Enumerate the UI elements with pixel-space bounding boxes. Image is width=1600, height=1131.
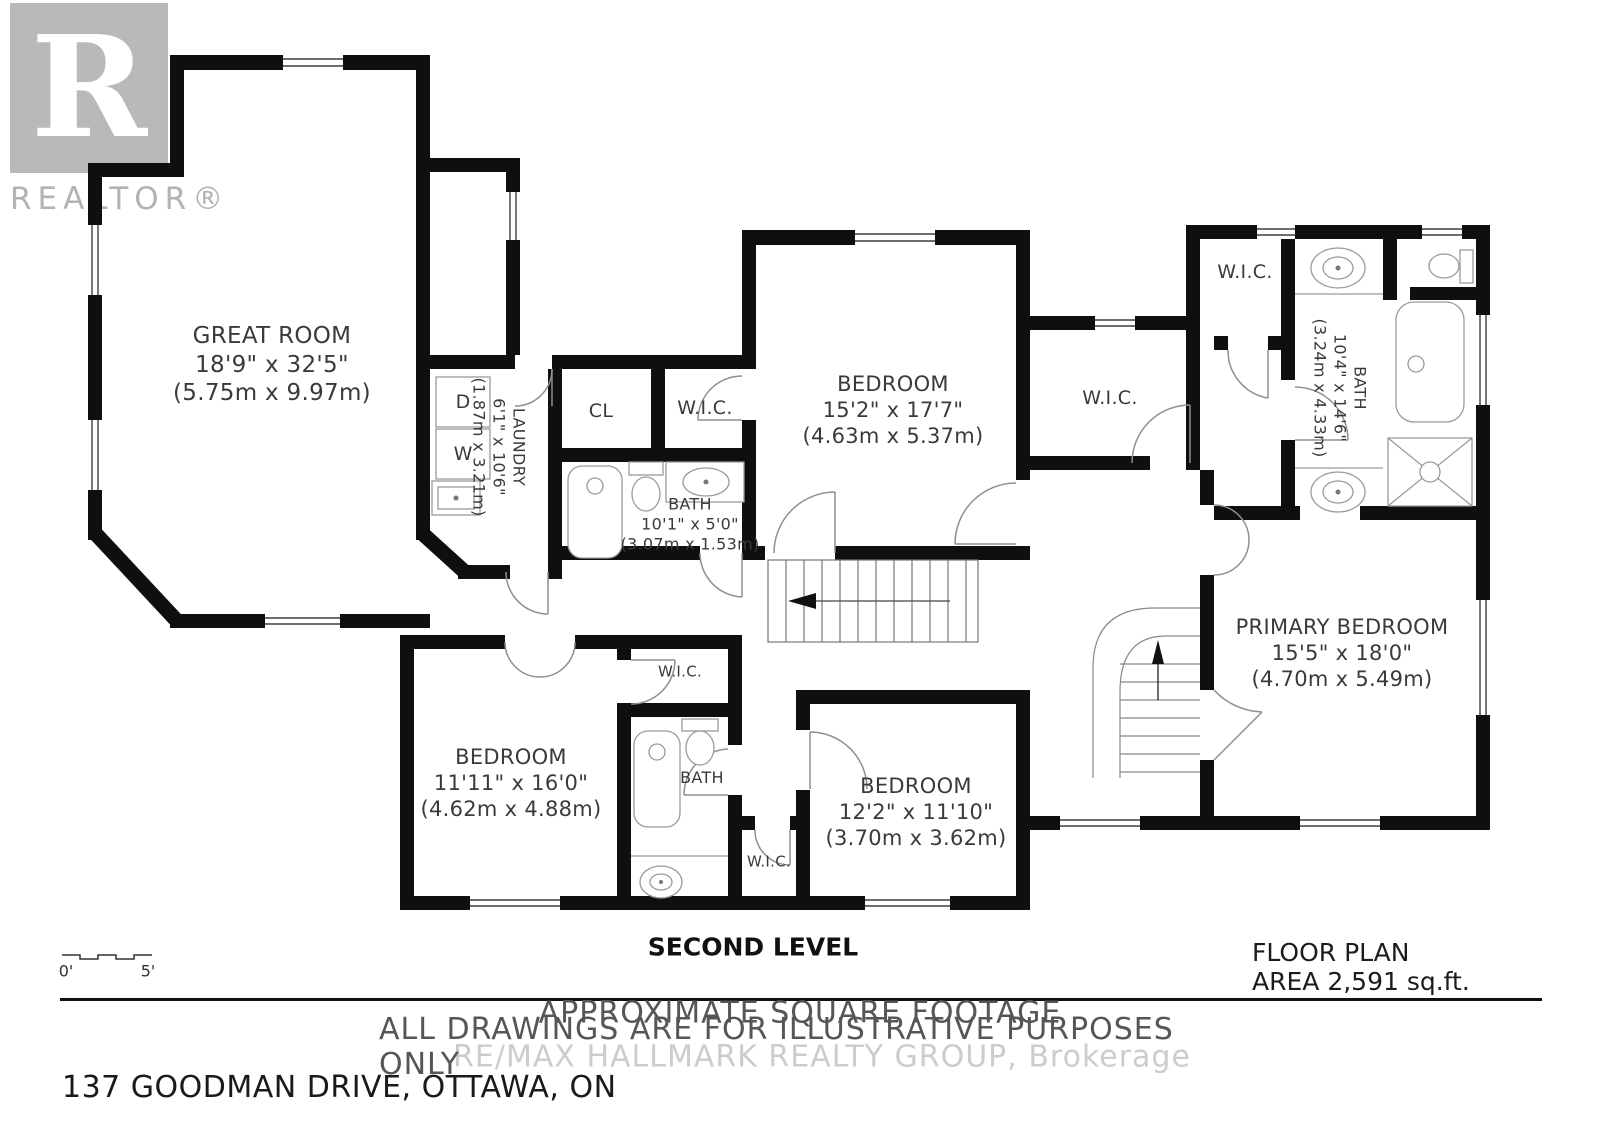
door-arc bbox=[755, 830, 790, 865]
sink-icon bbox=[666, 462, 744, 502]
door-arc bbox=[698, 376, 742, 420]
door-arc bbox=[810, 732, 867, 789]
walls bbox=[88, 55, 1490, 910]
window bbox=[1476, 600, 1490, 715]
shower-icon bbox=[1388, 438, 1472, 506]
bathtub-icon bbox=[568, 466, 622, 558]
sink-icon bbox=[1295, 248, 1383, 294]
window bbox=[855, 230, 935, 245]
stair-direction-arrow bbox=[1152, 640, 1164, 664]
door-arc bbox=[505, 642, 540, 677]
window bbox=[1476, 315, 1490, 405]
toilet-icon bbox=[1429, 250, 1473, 283]
toilet-icon bbox=[629, 462, 663, 511]
window bbox=[506, 192, 520, 240]
window bbox=[865, 896, 950, 910]
fixtures bbox=[432, 248, 1473, 898]
window bbox=[1300, 816, 1380, 830]
staircase-curved bbox=[1093, 608, 1200, 778]
door-leaf bbox=[1214, 712, 1262, 760]
window bbox=[88, 420, 102, 490]
window bbox=[1060, 816, 1140, 830]
door-arc bbox=[955, 483, 1016, 544]
floor-plan-page: R REALTOR® RE/MAX HALLMARK REALTY GROUP,… bbox=[0, 0, 1600, 1131]
laundry-sink-icon bbox=[432, 481, 480, 515]
window bbox=[1257, 225, 1295, 239]
toilet-icon bbox=[682, 719, 718, 765]
window bbox=[1422, 225, 1462, 239]
door-arc bbox=[1295, 387, 1348, 440]
door-arc bbox=[1228, 350, 1268, 398]
door-arcs bbox=[505, 350, 1348, 865]
window bbox=[88, 225, 102, 295]
window bbox=[1095, 316, 1135, 330]
washer-icon bbox=[436, 429, 490, 479]
bathtub-icon bbox=[634, 731, 680, 827]
floor-plan-svg bbox=[0, 0, 1600, 1131]
bathtub-icon bbox=[1396, 302, 1464, 422]
door-arc bbox=[700, 553, 742, 597]
window bbox=[470, 896, 560, 910]
sink-icon bbox=[1295, 468, 1383, 512]
window bbox=[283, 55, 343, 70]
door-arc bbox=[1214, 690, 1262, 712]
stair-direction-arrow bbox=[788, 593, 816, 609]
door-arc bbox=[1214, 540, 1249, 575]
door-arc bbox=[506, 572, 548, 614]
dryer-icon bbox=[436, 377, 490, 427]
property-address: 137 GOODMAN DRIVE, OTTAWA, ON bbox=[62, 1070, 617, 1105]
scale-bar bbox=[62, 955, 152, 959]
door-arc bbox=[774, 492, 835, 553]
windows bbox=[88, 55, 1490, 910]
staircase-main bbox=[768, 560, 978, 642]
door-arc bbox=[515, 369, 552, 406]
window bbox=[265, 614, 340, 628]
door-arc bbox=[631, 660, 675, 704]
sink-icon bbox=[631, 856, 728, 898]
door-arc bbox=[1132, 405, 1190, 463]
door-arc bbox=[540, 642, 575, 677]
